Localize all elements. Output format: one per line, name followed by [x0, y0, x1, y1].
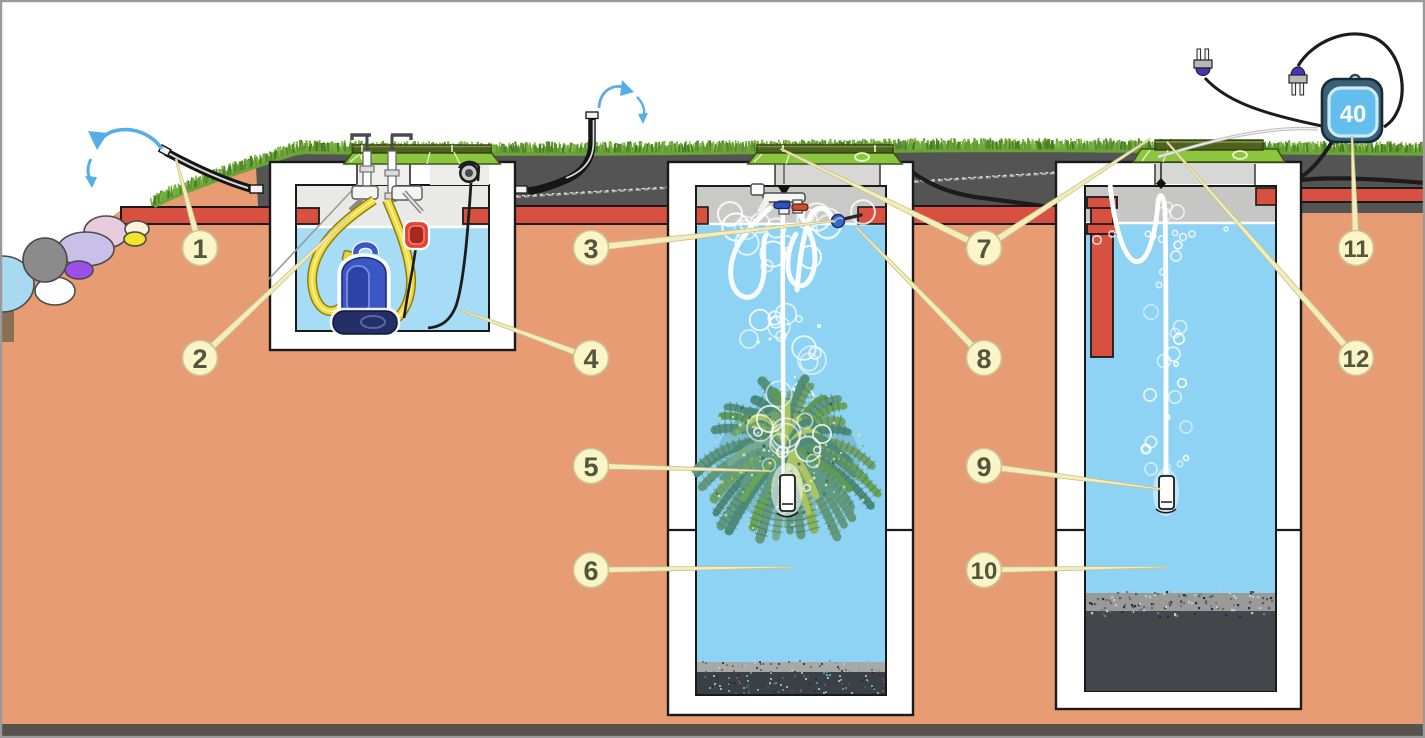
svg-text:2: 2 — [192, 344, 207, 374]
svg-text:6: 6 — [583, 556, 598, 586]
svg-text:7: 7 — [976, 234, 991, 264]
svg-text:1: 1 — [192, 234, 207, 264]
svg-text:5: 5 — [583, 452, 598, 482]
svg-text:9: 9 — [976, 452, 991, 482]
svg-text:3: 3 — [583, 234, 598, 264]
svg-text:8: 8 — [976, 344, 991, 374]
svg-text:10: 10 — [971, 558, 998, 585]
svg-text:12: 12 — [1343, 346, 1370, 373]
svg-text:11: 11 — [1343, 236, 1368, 263]
svg-text:4: 4 — [583, 344, 598, 374]
svg-text:40: 40 — [1340, 101, 1367, 128]
